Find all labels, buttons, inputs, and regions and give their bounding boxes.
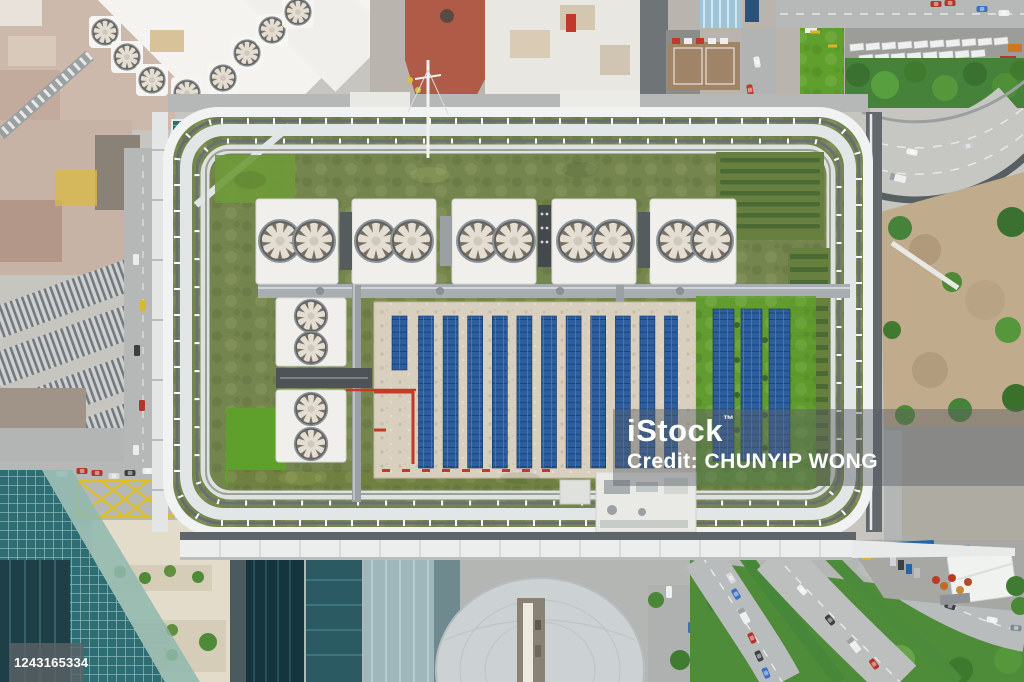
- trademark-symbol: ™: [723, 414, 735, 426]
- podium-walkway: [180, 540, 1015, 560]
- van: [666, 586, 672, 598]
- solar-panel-column: [492, 316, 507, 468]
- lawn-top: [800, 22, 844, 98]
- car: [134, 345, 140, 356]
- sports-court: [668, 38, 740, 90]
- taxi: [140, 300, 146, 311]
- istock-watermark: iStock™ Credit: CHUNYIP WONG: [613, 409, 1024, 486]
- credit-line: Credit: CHUNYIP WONG: [627, 451, 1024, 473]
- duct: [258, 284, 850, 298]
- truck: [566, 14, 576, 32]
- hvac-unit: [352, 199, 436, 284]
- istock-logo-text: iStock™: [627, 415, 1024, 448]
- photo-scene: [0, 0, 1024, 682]
- hvac-unit: [256, 199, 338, 284]
- road-top-right: [776, 0, 1024, 28]
- car: [133, 254, 139, 265]
- red-markings: [382, 469, 550, 472]
- aerial-photo: iStock™ Credit: CHUNYIP WONG 1243165334: [0, 0, 1024, 682]
- hvac-unit: [452, 199, 536, 284]
- solar-panel-column: [566, 316, 581, 468]
- solar-panel-column: [419, 316, 434, 468]
- solar-panel-column: [517, 316, 532, 468]
- car: [133, 445, 139, 455]
- glass-towers: [246, 560, 460, 682]
- hvac-unit: [552, 199, 636, 284]
- car: [139, 400, 145, 411]
- solar-panel-column: [392, 316, 407, 370]
- solar-panel-column: [443, 316, 458, 468]
- hvac-unit: [650, 199, 736, 284]
- solar-panel-column: [591, 316, 606, 468]
- dirt-lot: [880, 172, 1024, 432]
- solar-panel-column: [468, 316, 483, 468]
- solar-panel-column: [542, 316, 557, 468]
- image-id-watermark: 1243165334: [10, 643, 84, 682]
